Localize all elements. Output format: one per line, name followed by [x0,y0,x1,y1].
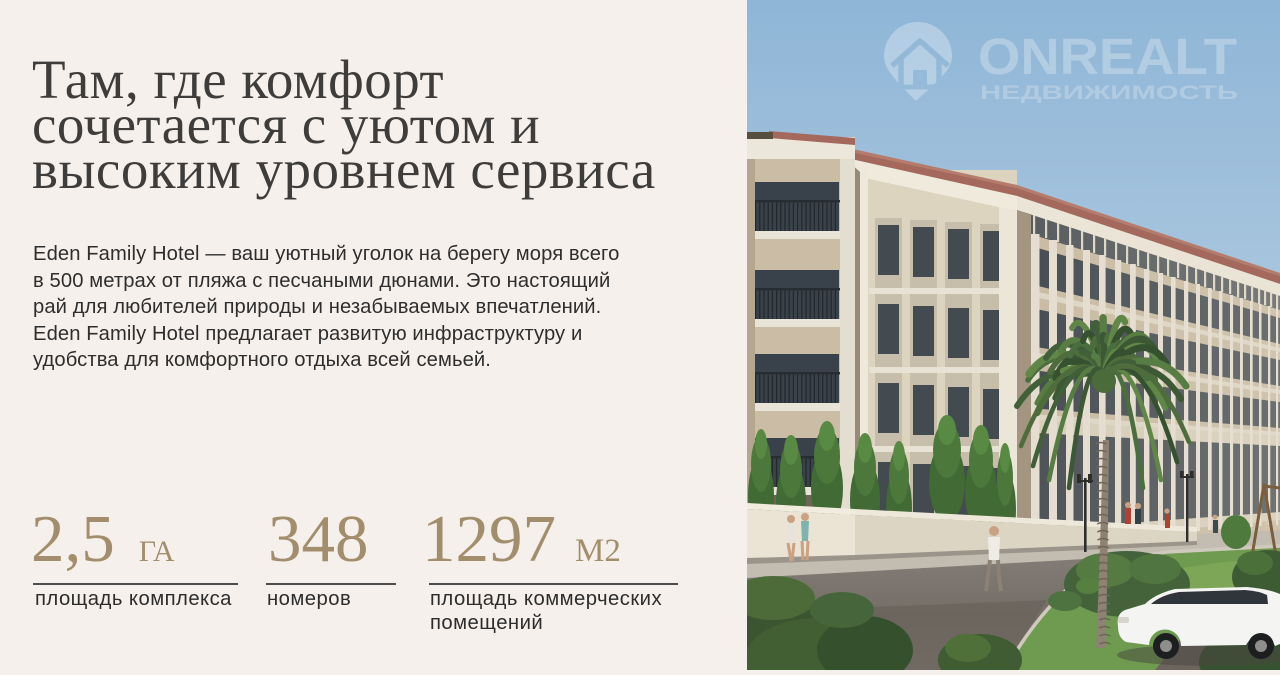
svg-text:ONREALT: ONREALT [978,28,1237,85]
svg-text:НЕДВИЖИМОСТЬ: НЕДВИЖИМОСТЬ [980,83,1238,104]
